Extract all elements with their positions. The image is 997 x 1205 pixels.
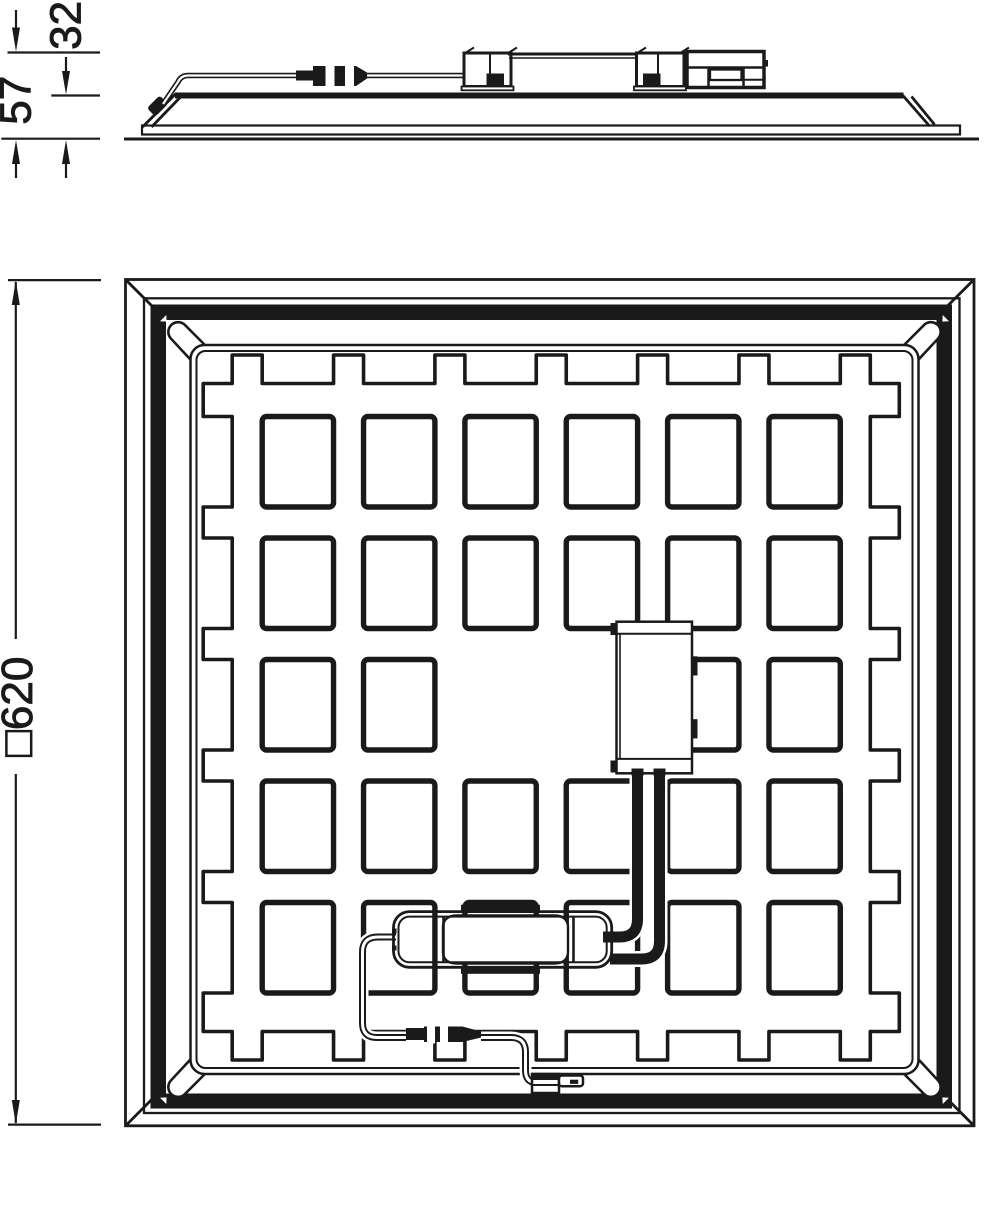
svg-text:57: 57	[0, 76, 41, 125]
svg-text:32: 32	[42, 1, 91, 50]
svg-text:□620: □620	[0, 657, 42, 757]
